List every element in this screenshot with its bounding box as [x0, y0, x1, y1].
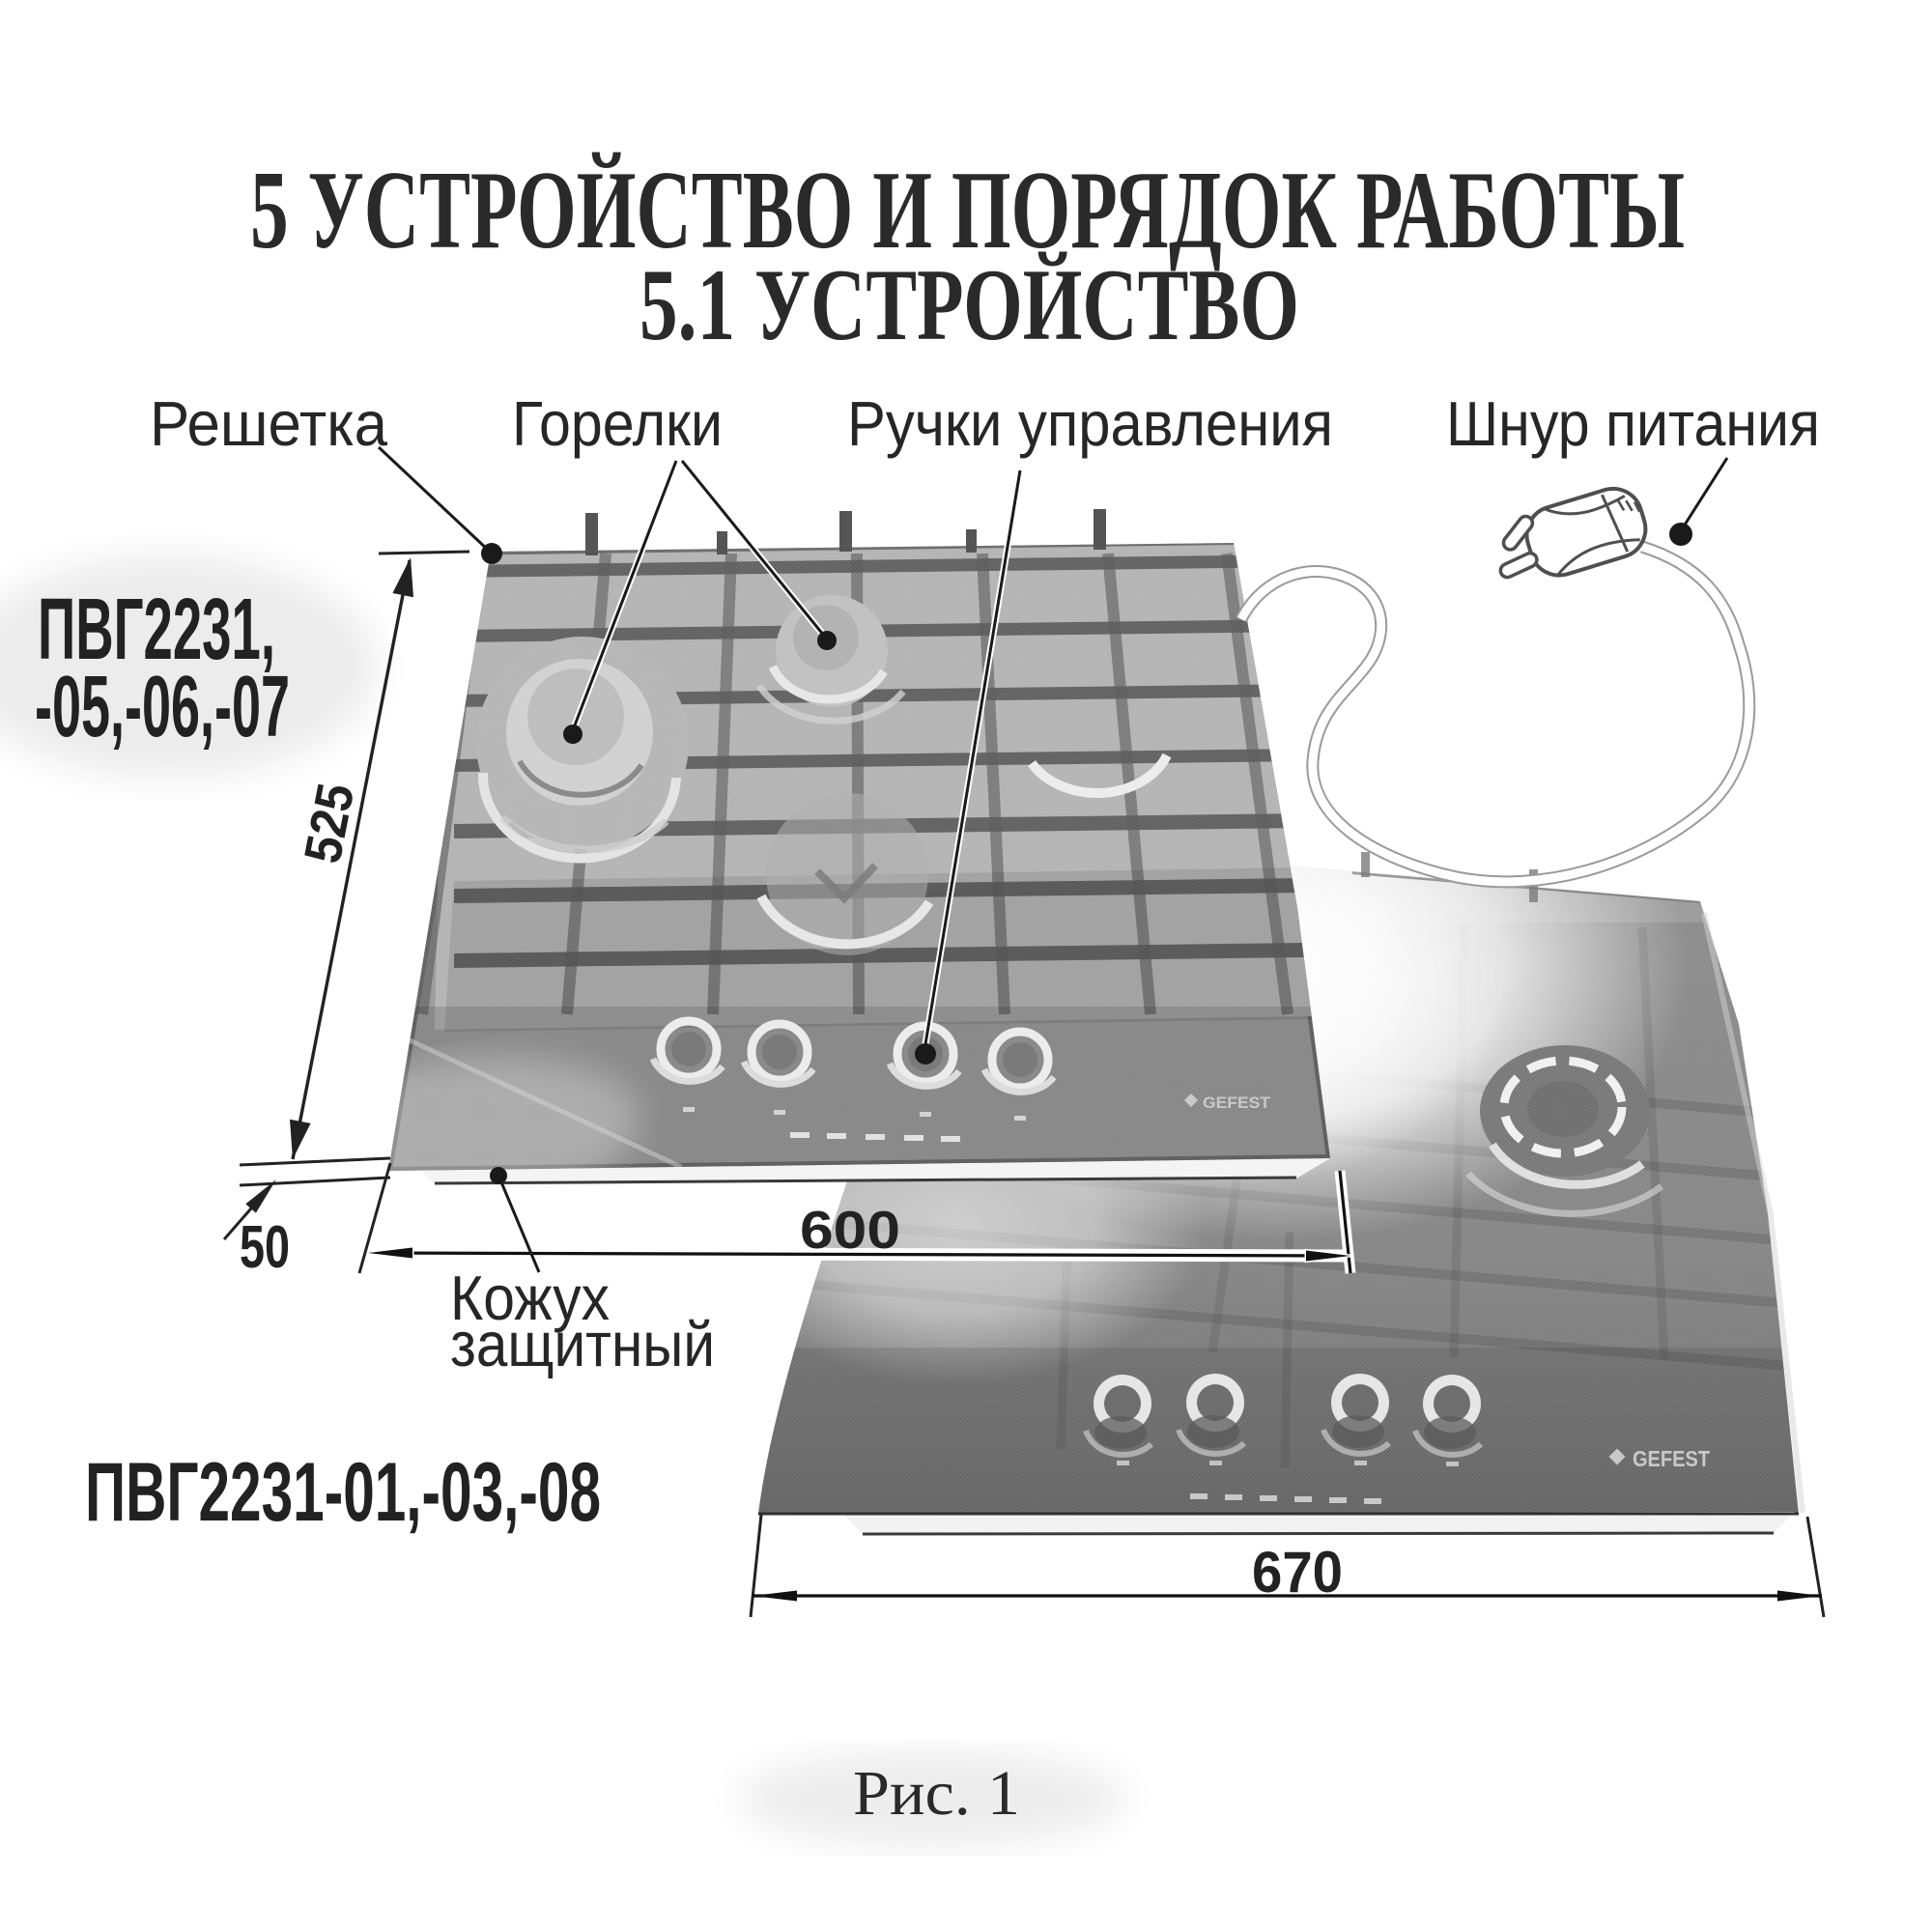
svg-text:ПВГ2231-01,-03,-08: ПВГ2231-01,-03,-08 [85, 1446, 601, 1539]
svg-text:GEFEST: GEFEST [1633, 1446, 1710, 1471]
svg-text:600: 600 [800, 1200, 900, 1260]
svg-text:защитный: защитный [450, 1309, 715, 1379]
svg-text:Горелки: Горелки [512, 388, 723, 459]
svg-text:GEFEST: GEFEST [1203, 1094, 1271, 1112]
svg-text:670: 670 [1252, 1540, 1343, 1605]
svg-text:Решетка: Решетка [150, 388, 388, 459]
svg-text:50: 50 [240, 1214, 290, 1281]
svg-text:Ручки управления: Ручки управления [847, 388, 1333, 459]
svg-text:-05,-06,-07: -05,-06,-07 [35, 659, 290, 755]
svg-text:Рис. 1: Рис. 1 [853, 1758, 1020, 1829]
svg-text:5.1 УСТРОЙСТВО: 5.1 УСТРОЙСТВО [639, 248, 1299, 361]
svg-text:Шнур питания: Шнур питания [1446, 388, 1820, 459]
